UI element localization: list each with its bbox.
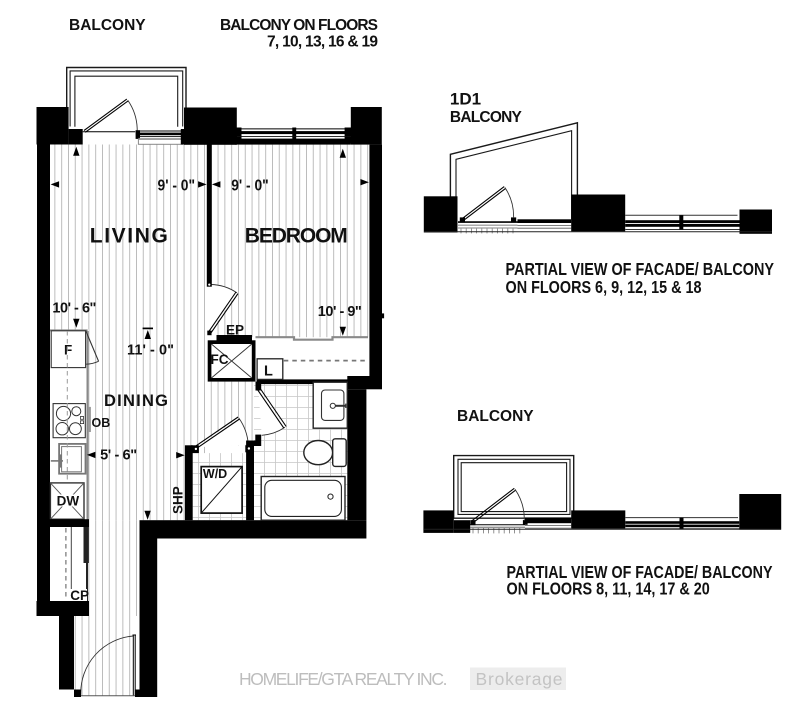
- svg-text:1D1: 1D1: [450, 89, 481, 108]
- svg-text:BEDROOM: BEDROOM: [245, 224, 348, 247]
- svg-text:LIVING: LIVING: [90, 224, 168, 247]
- svg-text:BALCONY: BALCONY: [457, 408, 534, 425]
- svg-text:W/D: W/D: [203, 467, 227, 481]
- svg-text:Brokerage: Brokerage: [476, 669, 563, 689]
- svg-text:BALCONY: BALCONY: [450, 109, 523, 126]
- svg-text:BALCONY: BALCONY: [69, 17, 146, 34]
- svg-text:L: L: [264, 364, 273, 380]
- svg-text:DW: DW: [57, 494, 80, 509]
- svg-text:EP: EP: [226, 323, 244, 338]
- svg-text:BALCONY ON FLOORS: BALCONY ON FLOORS: [220, 17, 378, 34]
- svg-text:DINING: DINING: [104, 392, 168, 410]
- svg-text:7, 10, 13, 16 & 19: 7, 10, 13, 16 & 19: [267, 33, 378, 50]
- svg-text:9' - 0": 9' - 0": [158, 178, 196, 195]
- svg-text:SHP: SHP: [171, 486, 186, 514]
- svg-text:F: F: [64, 343, 72, 358]
- svg-text:ON FLOORS 6, 9, 12, 15 & 18: ON FLOORS 6, 9, 12, 15 & 18: [506, 277, 702, 297]
- svg-text:10' - 9": 10' - 9": [318, 304, 362, 320]
- svg-text:11' - 0": 11' - 0": [127, 342, 174, 358]
- svg-text:ON FLOORS 8, 11, 14, 17 & 20: ON FLOORS 8, 11, 14, 17 & 20: [507, 578, 711, 598]
- svg-text:OB: OB: [92, 416, 111, 430]
- svg-text:CP: CP: [70, 588, 89, 603]
- svg-text:FC: FC: [211, 352, 229, 367]
- svg-text:5' - 6": 5' - 6": [100, 447, 137, 463]
- svg-text:HOMELIFE/GTA REALTY INC.: HOMELIFE/GTA REALTY INC.: [239, 669, 448, 689]
- svg-text:9' - 0": 9' - 0": [231, 178, 269, 195]
- svg-text:10' - 6": 10' - 6": [52, 301, 96, 317]
